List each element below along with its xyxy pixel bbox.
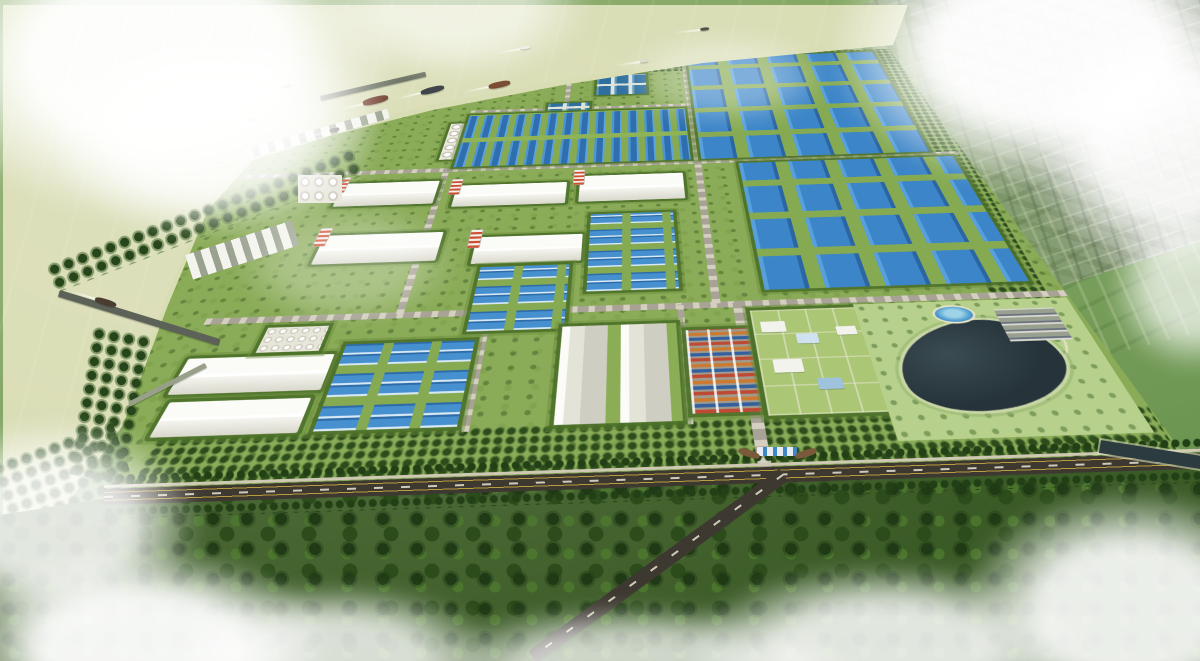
- port-yard: [185, 220, 300, 279]
- box: [640, 59, 648, 63]
- box: [362, 94, 389, 107]
- long-jetty: [58, 290, 221, 346]
- box: [143, 54, 155, 61]
- box: [488, 79, 511, 89]
- box: [520, 45, 530, 50]
- box: [420, 84, 445, 96]
- box: [246, 117, 259, 123]
- small-jetty: [128, 363, 207, 406]
- box: [700, 27, 709, 31]
- aerial-masterplan-render: [0, 0, 1200, 661]
- coastal-tanks: [298, 175, 342, 203]
- box: [282, 84, 291, 89]
- box: [213, 158, 222, 163]
- entrance-gate: [757, 447, 797, 456]
